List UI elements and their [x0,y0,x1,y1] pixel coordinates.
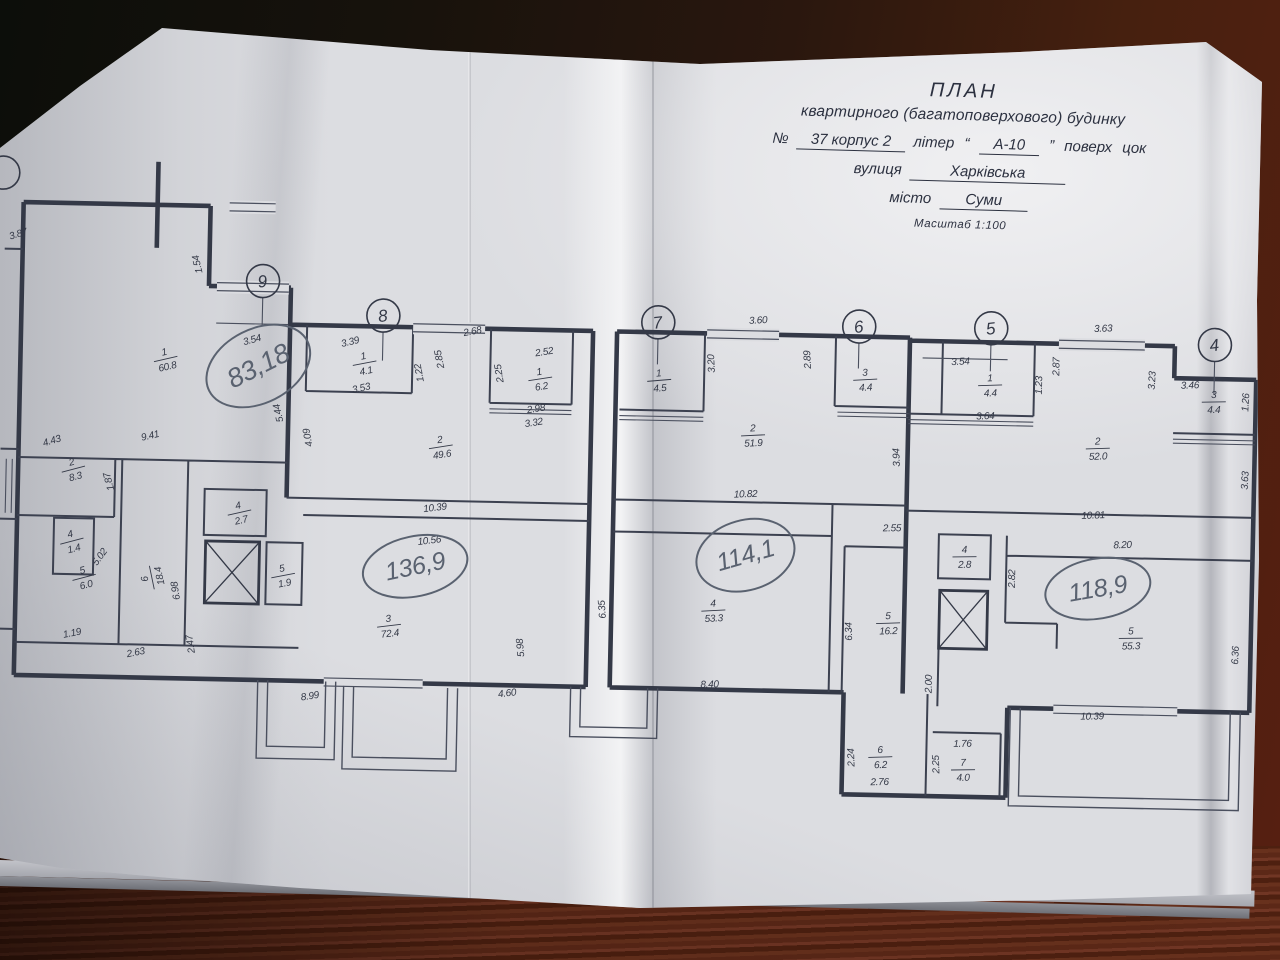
fraction-line [1086,448,1110,449]
room-number: 6 [139,574,151,582]
dimension-label: 2.55 [882,523,902,534]
fraction-line [876,623,900,624]
room-area: 4.4 [859,382,873,394]
room-label: 34.4 [1202,390,1226,416]
room-number: 1 [536,367,543,379]
balcony-outlines [255,680,1240,811]
room-area: 4.0 [957,773,971,784]
dimension-label: 10.82 [734,489,759,501]
dimension-label: 3.94 [891,447,903,466]
dimension-label: 3.63 [1094,323,1113,335]
fraction-line [701,610,725,611]
dimension-label: 3.23 [1147,370,1159,390]
dimension-label: 2.47 [184,633,198,654]
room-number: 2 [749,423,757,434]
window-symbols [208,200,1187,718]
handwritten-total-value: 114,1 [713,534,778,577]
room-area: 1.4 [66,542,82,556]
handwritten-area-total: 136,9 [357,526,473,606]
elevator-shaft [939,590,988,649]
room-area: 55.3 [1122,641,1141,652]
room-label: 42.7 [225,498,254,529]
room-number: 1 [656,368,662,379]
room-number: 1 [360,351,367,363]
room-number: 4 [66,529,75,541]
room-area: 60.8 [157,360,178,375]
dimension-label: 2.89 [802,350,814,371]
dimension-label: 6.35 [597,599,609,619]
axis-number: 5 [985,319,997,339]
room-label: 555.3 [1119,626,1143,652]
floor-plan-drawing: 3.874.439.411.871.543.545.445.022.632.47… [0,0,1280,960]
dimension-label: 3.60 [749,315,769,327]
room-area: 4.4 [984,388,998,399]
dimension-label: 3.46 [1181,380,1200,392]
dimension-label: 1.26 [1240,392,1252,412]
room-number: 6 [877,745,883,756]
axis-number: 6 [853,317,865,337]
axis-marker: 4 [1198,328,1232,362]
room-area: 4.5 [653,383,668,395]
handwritten-total-value: 136,9 [382,547,448,587]
dimension-label: 8.20 [1113,540,1132,552]
axis-circle [0,156,20,190]
handwritten-area-total: 118,9 [1040,550,1155,627]
dimension-label: 3.39 [340,335,361,350]
room-label: 516.2 [876,611,901,638]
dimension-label: 2.63 [125,646,147,661]
room-area: 2.8 [957,560,972,571]
dimension-label: 3.53 [351,381,372,396]
dimension-label: 8.99 [300,690,320,704]
dimension-label: 5.98 [515,638,528,658]
room-number: 4 [710,598,717,609]
dimension-label: 2.87 [1051,357,1062,377]
fraction-line [377,624,401,627]
room-area: 2.7 [233,514,250,528]
room-number: 5 [278,563,286,575]
handwritten-area-total: 114,1 [688,508,803,603]
dimension-label: 2.24 [846,748,858,768]
room-label: 42.8 [952,545,976,571]
axis-number: 4 [1209,336,1220,356]
room-label: 251.9 [740,423,765,450]
dimension-label: 8.40 [700,679,719,691]
handwritten-total-value: 118,9 [1066,570,1129,608]
dimension-label: 1.76 [953,739,972,750]
room-area: 1.9 [277,577,293,590]
room-label: 34.4 [853,367,878,394]
dimension-label: 2.76 [869,777,889,788]
elevator-shaft [204,541,259,604]
room-area: 8.3 [68,470,84,484]
room-area: 18.4 [153,565,168,586]
room-label: 41.4 [57,526,87,557]
room-label: 372.4 [376,612,403,641]
dimension-label: 3.20 [706,354,718,374]
room-label: 252.0 [1085,436,1110,463]
room-label: 618.4 [138,563,168,592]
dimension-label: 4.60 [497,687,517,700]
dimension-label: 4.09 [301,427,315,448]
room-number: 1 [160,347,168,359]
fraction-line [868,757,892,758]
room-number: 3 [1211,390,1217,401]
room-label: 249.6 [427,433,455,462]
axis-number: 7 [652,313,664,333]
room-area: 6.2 [874,760,888,771]
room-area: 4.1 [359,365,374,378]
dimension-label: 3.63 [1240,470,1252,490]
room-number: 5 [1128,626,1134,637]
room-number: 3 [862,368,869,379]
dimension-label: 9.41 [140,429,160,444]
room-label: 14.4 [978,373,1003,400]
dimension-label: 1.54 [190,253,205,274]
dimension-label: 2.68 [462,325,484,340]
room-area: 49.6 [432,448,452,462]
fraction-line [647,379,671,381]
dimension-label: 1.22 [412,362,426,383]
dimension-label: 10.81 [1081,510,1105,522]
room-label: 66.2 [868,745,893,772]
dimension-label: 4.43 [42,433,63,449]
room-number: 2 [435,434,444,446]
dimension-label: 3.87 [8,226,29,242]
room-number: 7 [960,758,966,769]
room-number: 1 [987,373,993,384]
room-label: 16.2 [527,365,555,394]
small-room-boxes [52,486,991,620]
dimension-label: 2.25 [493,363,507,384]
room-label: 14.1 [351,349,379,379]
room-number: 5 [885,611,891,622]
fraction-line [853,379,877,380]
paper-sheet: ПЛАН квартирного (багатоповерхового) буд… [0,0,1280,960]
room-area: 6.0 [79,578,95,592]
room-number: 3 [385,613,392,625]
room-area: 16.2 [879,626,898,638]
dimension-label: 10.39 [423,501,448,515]
handwritten-total-value: 83,18 [222,337,295,394]
fraction-line [741,435,765,436]
axis-number: 8 [377,306,389,326]
room-number: 2 [1094,436,1101,447]
dimension-label: 2.25 [931,754,943,774]
room-area: 53.3 [704,613,724,625]
dimension-label: 3.32 [524,416,544,430]
room-label: 56.0 [69,563,99,594]
dimension-label: 2.00 [924,674,935,694]
room-label: 14.5 [646,367,672,395]
dimension-label: 3.54 [242,333,263,348]
dimension-label: 2.52 [533,346,554,360]
dimension-label: 6.36 [1230,645,1242,665]
room-area: 51.9 [744,438,764,450]
dimension-label: 1.19 [62,626,83,640]
room-label: 160.8 [151,345,180,376]
room-label: 74.0 [951,758,975,784]
dimension-label: 10.39 [1080,711,1104,722]
room-label: 453.3 [701,598,726,625]
dimension-label: 6.34 [844,622,856,641]
room-area: 52.0 [1089,451,1108,463]
dimension-label: 3.54 [951,356,971,368]
dimension-label: 3.64 [976,411,995,423]
room-area: 72.4 [380,628,400,641]
dimension-label: 2.82 [1007,569,1018,589]
dimension-label: 2.85 [433,349,448,371]
axis-marker [0,156,20,190]
room-number: 4 [234,500,242,512]
dimension-label: 1.23 [1034,375,1045,394]
room-number: 4 [962,545,968,556]
fraction-line [978,385,1002,386]
dimension-label: 6.98 [169,580,183,600]
dimension-label: 5.44 [271,402,286,423]
room-area: 4.4 [1207,405,1221,416]
room-area: 6.2 [534,381,549,394]
room-label: 51.9 [269,561,297,591]
